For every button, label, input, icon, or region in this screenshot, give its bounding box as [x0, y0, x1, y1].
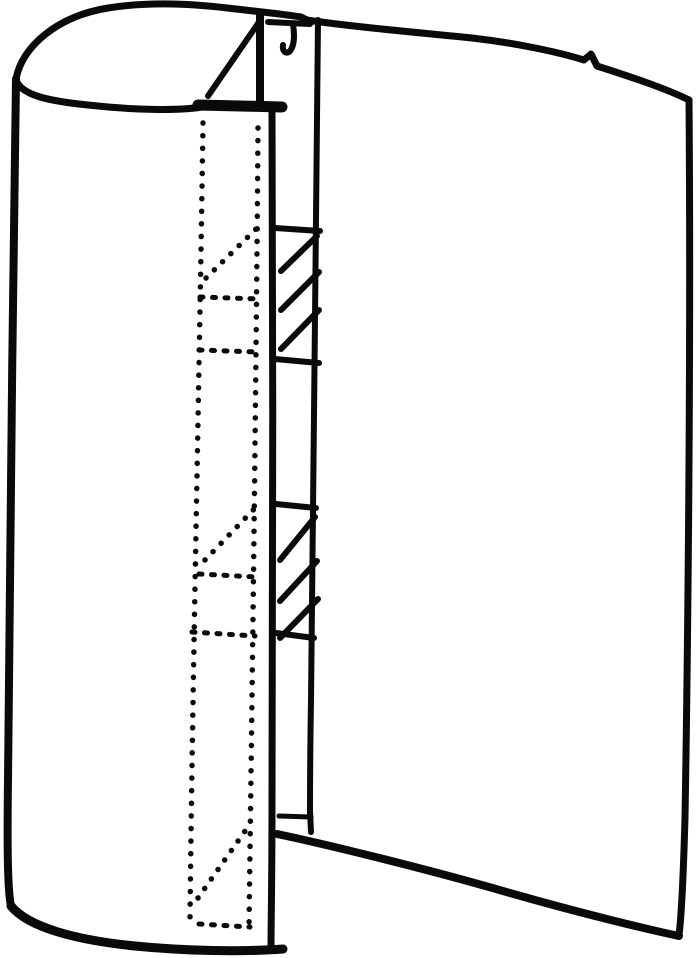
cylinder-bottom-right-rim — [277, 834, 679, 936]
cylinder-bottom-left-arc — [11, 906, 283, 951]
rim-stub-line — [268, 22, 310, 24]
hatch-stroke — [281, 236, 317, 271]
channel-left-edge-line — [271, 110, 273, 947]
hidden-diagonal-line — [205, 507, 256, 560]
figure-canvas — [0, 0, 700, 958]
cylinder-left-edge-line — [8, 79, 16, 906]
hidden-rung-line — [199, 924, 250, 927]
hidden-left-chord-line — [190, 123, 203, 918]
mast-hook-line — [283, 24, 294, 53]
cylinder-back-rim-line — [16, 4, 689, 100]
drawing-page — [0, 0, 700, 958]
hidden-diagonal-line — [206, 229, 256, 278]
channel-floor-line — [279, 816, 311, 817]
hidden-rung-line — [199, 574, 257, 577]
hidden-lattice — [190, 123, 260, 928]
cylinder-front-rim-arc — [16, 80, 202, 109]
mast-gusset-hypotenuse — [208, 22, 259, 96]
channel-rung-line — [276, 504, 316, 508]
channel-rung-line — [275, 359, 319, 363]
channel-right-foot-line — [310, 811, 311, 832]
hidden-rung-line — [192, 632, 255, 636]
mast-ledge-line — [198, 105, 282, 107]
hidden-rung-line — [200, 297, 260, 299]
channel-rung-line — [275, 228, 320, 231]
hidden-rung-line — [199, 350, 258, 352]
cylinder-shell — [8, 4, 690, 951]
hidden-right-chord-line — [249, 128, 258, 928]
cylinder-right-edge-line — [679, 100, 690, 935]
hidden-diagonal-line — [198, 824, 250, 898]
channel-right-edge-line — [310, 20, 318, 813]
